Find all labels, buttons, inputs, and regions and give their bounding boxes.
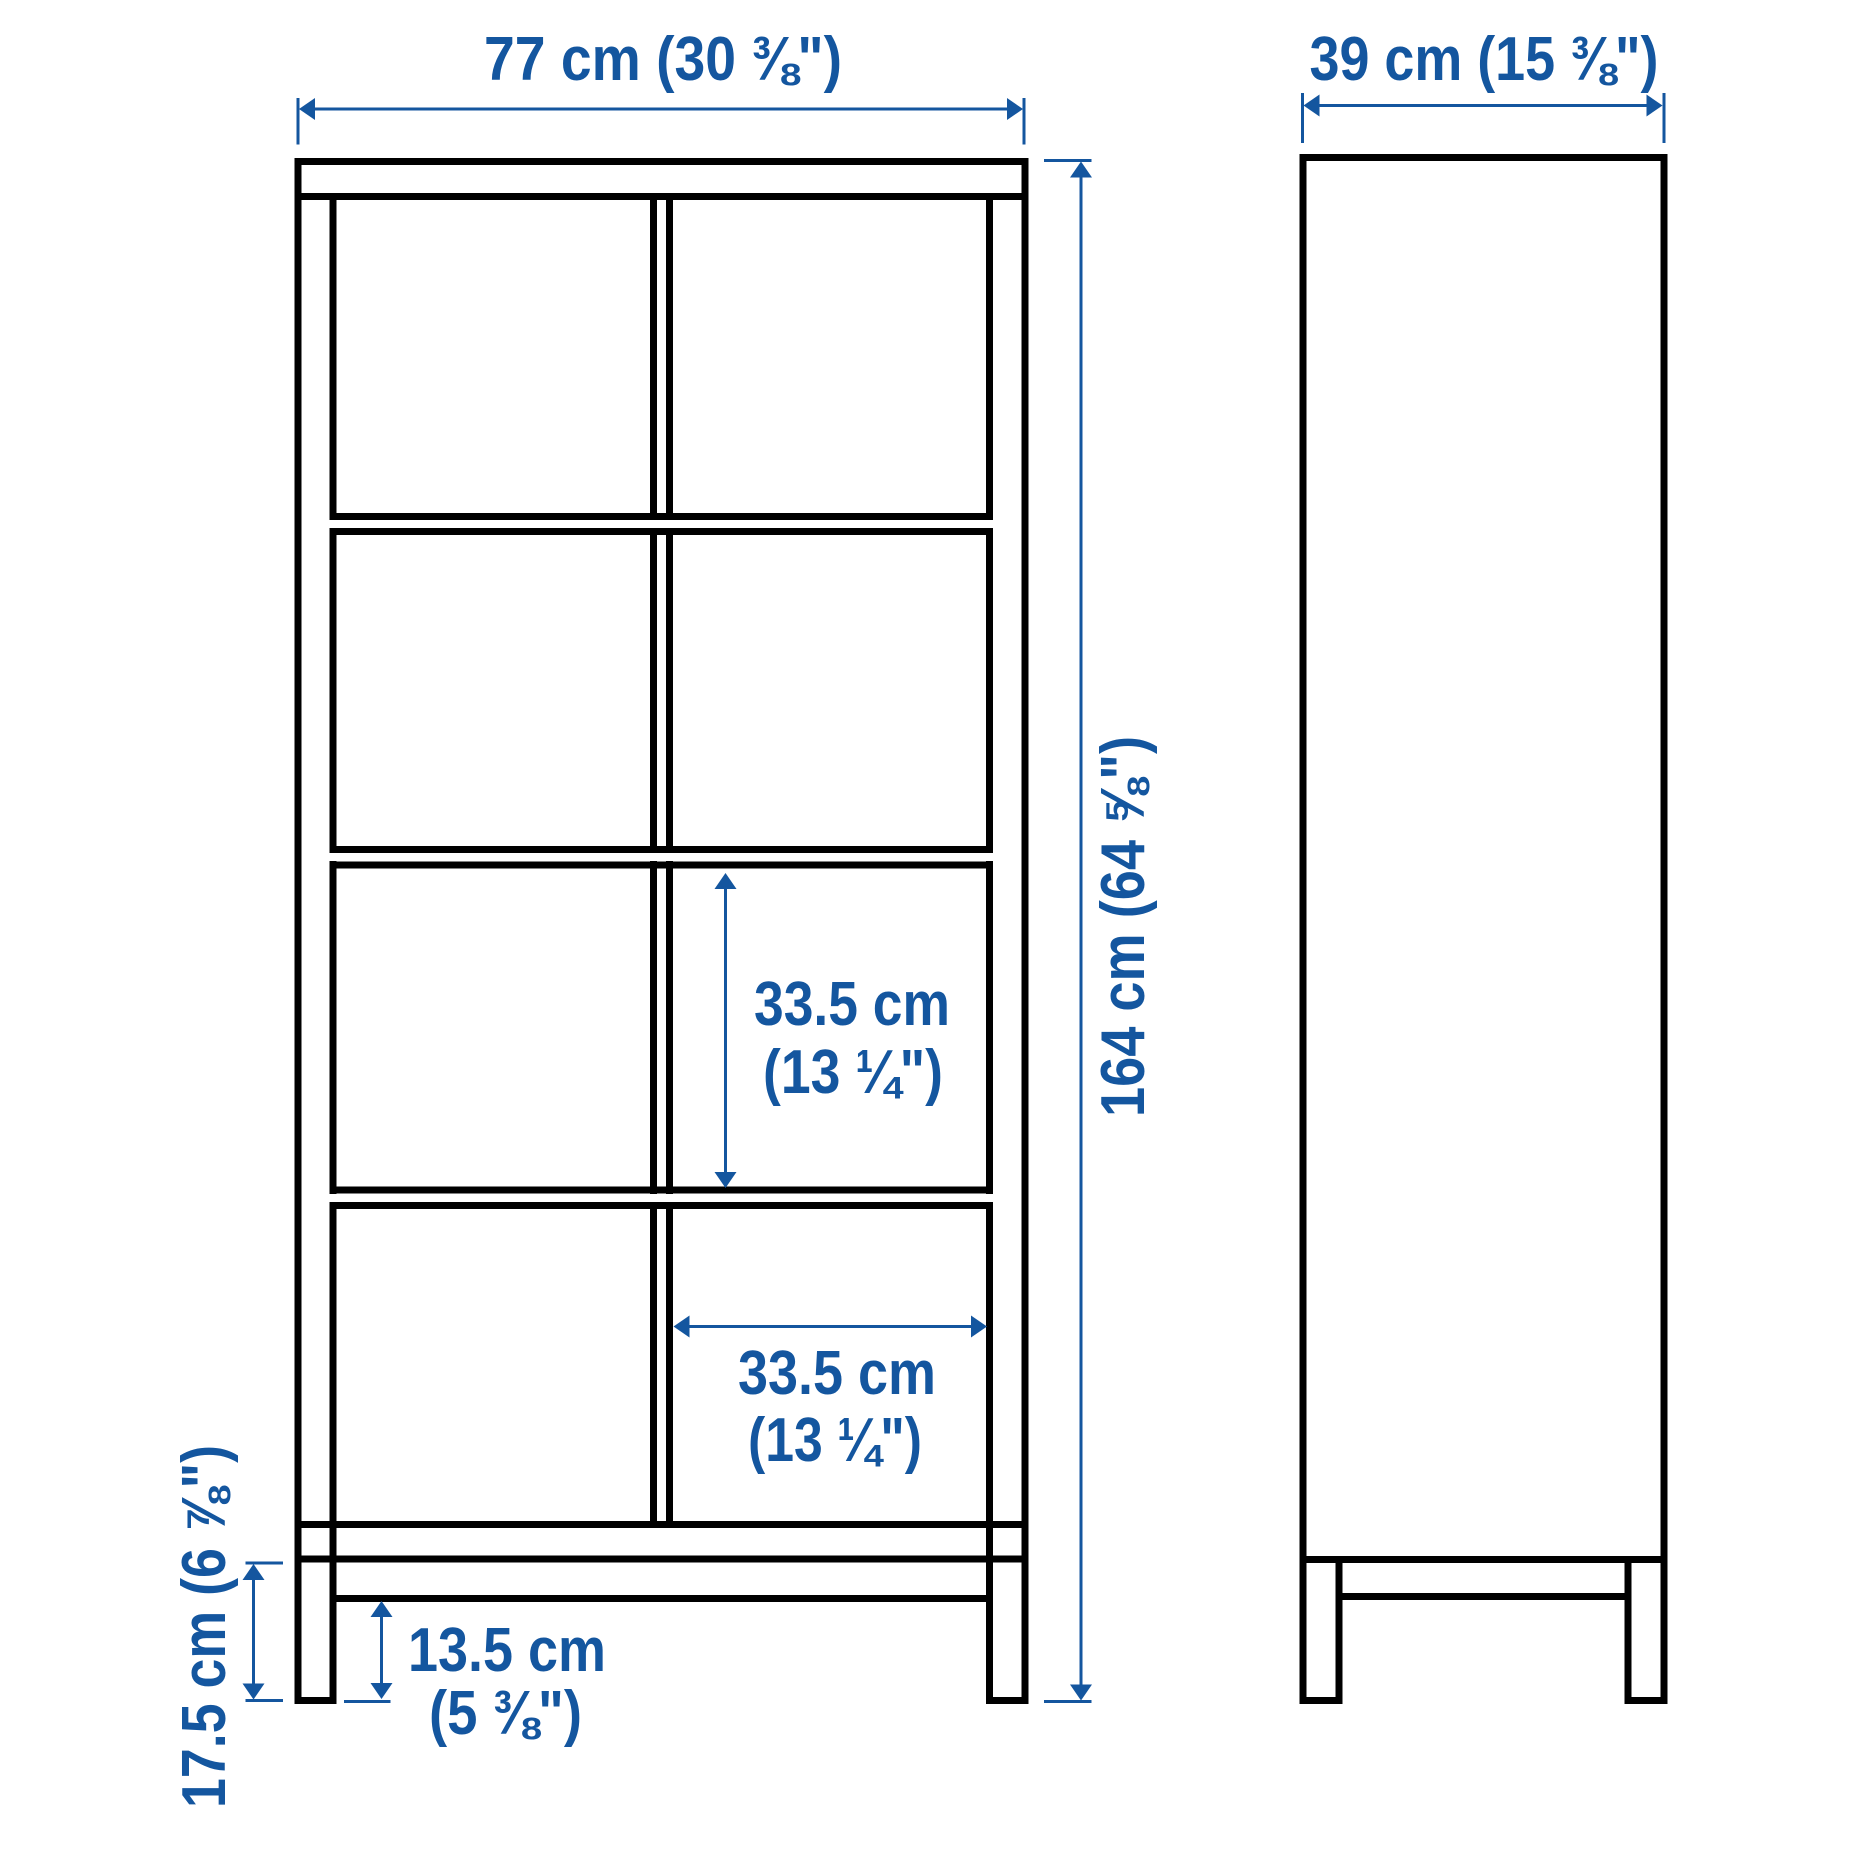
svg-text:164 cm (64 ⅝"): 164 cm (64 ⅝") [1089,736,1158,1117]
svg-text:39 cm (15 ⅜"): 39 cm (15 ⅜") [1310,25,1659,94]
svg-text:33.5 cm: 33.5 cm [754,970,950,1039]
svg-text:17.5 cm (6 ⅞"): 17.5 cm (6 ⅞") [170,1445,239,1808]
svg-text:(5 ⅜"): (5 ⅜") [429,1679,582,1748]
svg-text:(13 ¼"): (13 ¼") [763,1038,943,1107]
svg-text:33.5 cm: 33.5 cm [738,1339,936,1408]
svg-text:(13 ¼"): (13 ¼") [748,1406,922,1475]
svg-text:77 cm (30 ⅜"): 77 cm (30 ⅜") [484,25,842,94]
svg-text:13.5 cm: 13.5 cm [408,1616,606,1685]
